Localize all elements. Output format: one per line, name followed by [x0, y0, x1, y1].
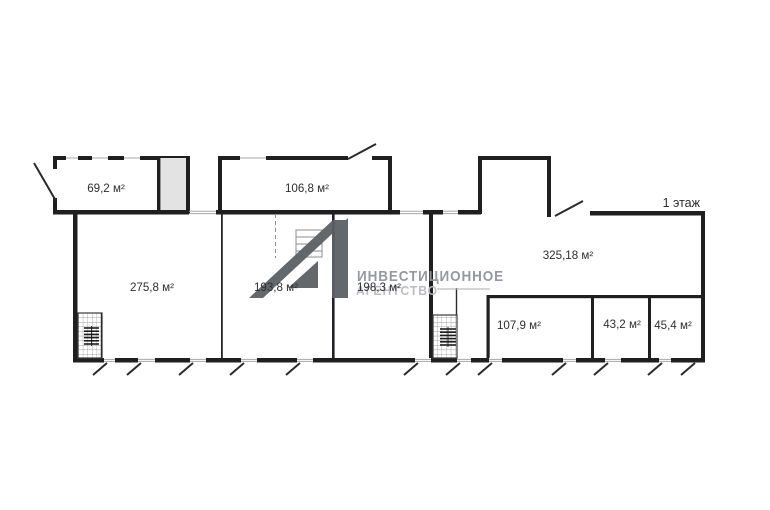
- room-label-275: 275,8 м²: [130, 281, 174, 294]
- room-label-106: 106,8 м²: [285, 182, 329, 195]
- room-label-193: 193,8 м²: [254, 281, 298, 294]
- floor-plan-drawing: ИНВЕСТИЦИОННОЕ АГЕНТСТВО 69,2 м² 106,8 м…: [0, 0, 770, 510]
- floor-plan-page: ИНВЕСТИЦИОННОЕ АГЕНТСТВО 69,2 м² 106,8 м…: [0, 0, 770, 510]
- room-label-107: 107,9 м²: [497, 319, 541, 332]
- room-label-69: 69,2 м²: [87, 182, 125, 195]
- left-exterior-wall: [73, 210, 78, 362]
- room-label-325: 325,18 м²: [543, 249, 594, 262]
- plan-background: [0, 0, 770, 510]
- room-label-43: 43,2 м²: [603, 318, 641, 331]
- room-label-45: 45,4 м²: [654, 319, 692, 332]
- room-label-198: 198,3 м²: [357, 281, 401, 294]
- floor-label: 1 этаж: [663, 196, 701, 210]
- staircase-left: [78, 313, 102, 358]
- shaft-block: [157, 158, 190, 214]
